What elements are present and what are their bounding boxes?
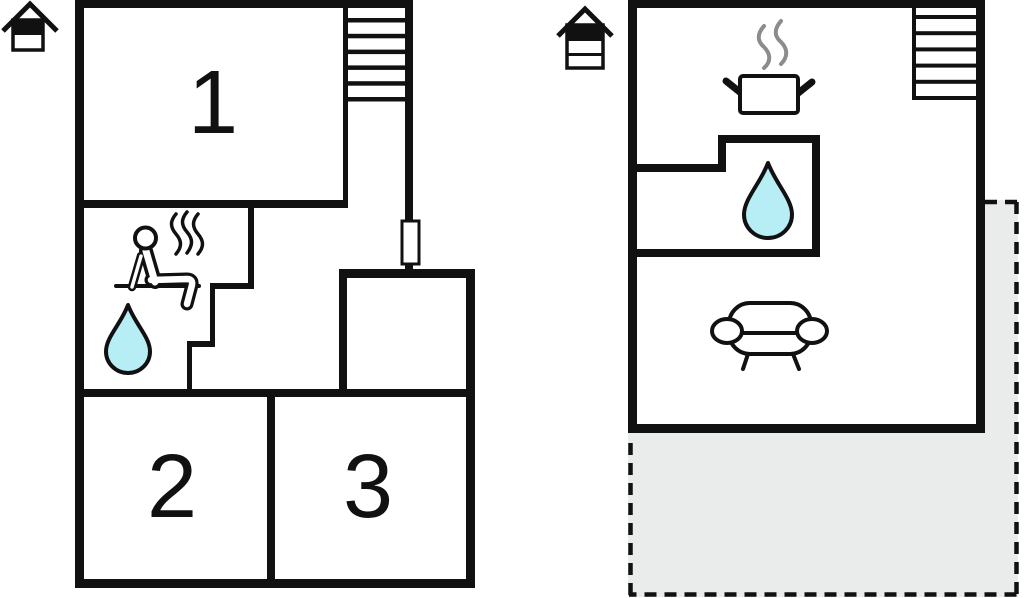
terrace-area: [628, 200, 1018, 597]
floorplan-svg: 1 2 3: [0, 0, 1024, 598]
room-label-3: 3: [343, 437, 393, 537]
stair-tread: [916, 31, 976, 35]
terrace-fill: [628, 433, 1018, 597]
wall-segment: [75, 579, 475, 588]
left-plan-walls: [75, 0, 475, 588]
stair-tread: [916, 80, 976, 84]
wall-segment: [187, 341, 192, 392]
wall-segment: [466, 269, 475, 588]
wall-segment: [210, 283, 254, 289]
sofa-icon: [712, 303, 827, 369]
wall-segment: [248, 208, 254, 288]
wall-segment: [812, 135, 820, 257]
stair-tread: [348, 81, 405, 86]
wall-segment: [718, 135, 820, 143]
stair-tread: [916, 15, 976, 19]
stair-tread: [348, 50, 405, 55]
room-label-2: 2: [147, 437, 197, 537]
left-floorplan: 1 2 3: [75, 0, 475, 588]
house-top-storey-filled: [567, 25, 603, 41]
wall-segment: [976, 0, 985, 433]
water-drop-icon: [744, 163, 792, 238]
wall-segment: [339, 269, 475, 278]
wall-segment: [267, 397, 275, 579]
wall-segment: [628, 0, 637, 433]
stair-tread: [348, 65, 405, 70]
floor-indicator-left-icon: [3, 4, 57, 50]
pot-steam-icon: [759, 21, 787, 68]
sofa-armrest: [797, 319, 827, 343]
cooking-pot-icon: [726, 21, 812, 113]
room-label-1: 1: [188, 53, 238, 153]
sofa-leg: [793, 354, 799, 369]
wall-segment: [339, 269, 347, 397]
sofa-armrest: [712, 319, 742, 343]
wall-segment: [637, 164, 726, 172]
wall-segment: [84, 200, 348, 208]
terrace-fill: [985, 200, 1018, 433]
stair-tread: [348, 18, 405, 23]
sauna-person-head: [135, 228, 156, 249]
wall-segment: [75, 0, 413, 8]
water-drop-icon: [106, 305, 150, 373]
stair-tread: [916, 47, 976, 51]
stair-tread: [348, 97, 405, 102]
stair-tread: [916, 96, 976, 100]
house-top-storey-filled: [13, 20, 43, 35]
pot-body: [740, 76, 798, 113]
wall-segment: [637, 249, 820, 257]
left-staircase-icon: [348, 18, 405, 102]
wall-segment: [343, 8, 348, 204]
sofa-leg: [743, 354, 748, 369]
stair-tread: [916, 64, 976, 68]
floorplan-canvas: 1 2 3: [0, 0, 1024, 598]
right-floorplan: [628, 0, 1018, 597]
floor-indicator-right-icon: [558, 9, 612, 68]
wall-segment: [75, 0, 84, 588]
wall-segment: [912, 8, 916, 100]
wall-segment: [75, 389, 466, 397]
wall-segment: [628, 424, 985, 433]
door-icon: [402, 221, 419, 264]
wall-segment: [405, 0, 413, 222]
right-staircase-icon: [916, 15, 976, 100]
sauna-icon: [116, 212, 203, 304]
stair-tread: [348, 34, 405, 39]
wall-segment: [210, 283, 215, 346]
wall-segment: [628, 0, 985, 8]
sauna-steam-icon: [172, 212, 203, 254]
